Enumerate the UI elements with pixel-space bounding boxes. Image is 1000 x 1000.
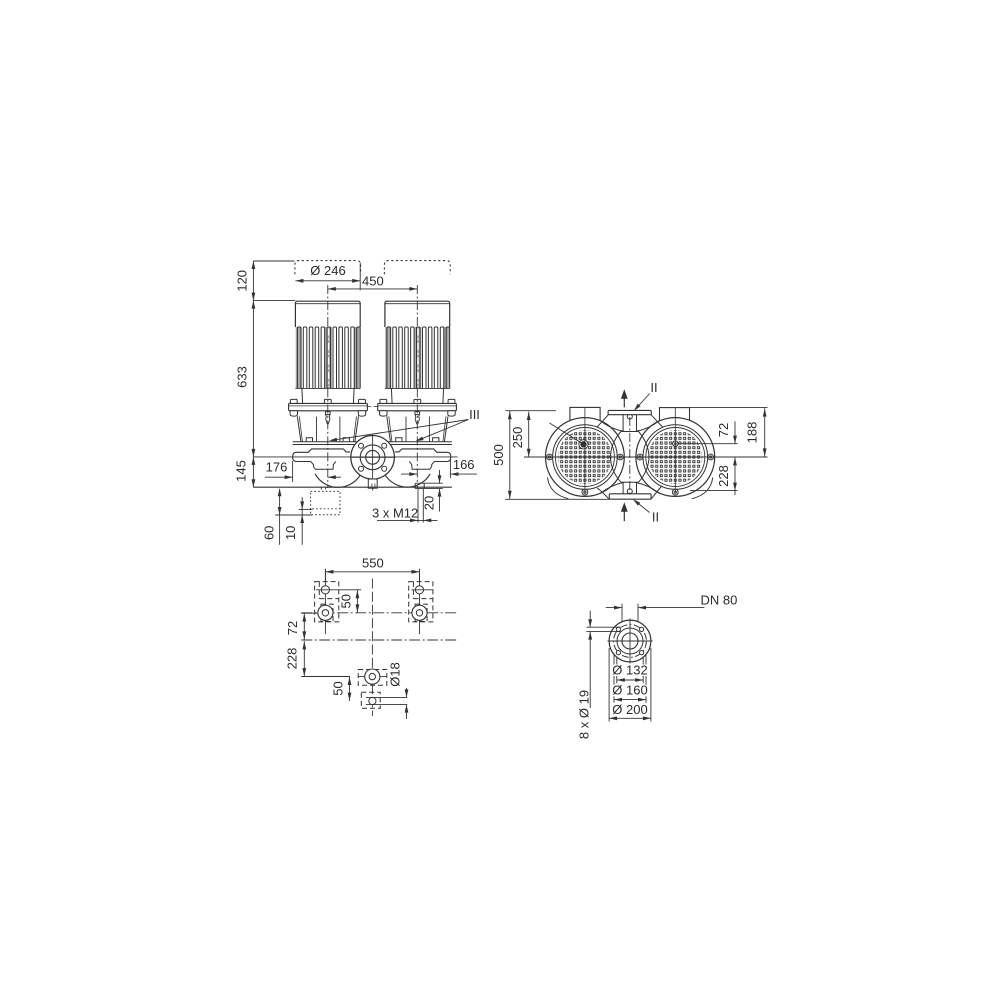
svg-text:DN 80: DN 80	[701, 593, 738, 608]
svg-text:250: 250	[510, 427, 525, 449]
svg-text:Ø18: Ø18	[388, 662, 403, 687]
svg-text:20: 20	[422, 496, 437, 510]
svg-text:450: 450	[362, 274, 384, 289]
svg-text:72: 72	[716, 423, 731, 437]
svg-text:Ø 132: Ø 132	[612, 662, 647, 677]
svg-text:188: 188	[745, 422, 760, 444]
svg-text:176: 176	[266, 460, 288, 475]
svg-text:III: III	[469, 407, 480, 422]
svg-text:228: 228	[285, 648, 300, 670]
svg-text:Ø 200: Ø 200	[612, 702, 647, 717]
svg-text:8 x Ø 19: 8 x Ø 19	[576, 690, 591, 739]
svg-text:550: 550	[362, 555, 384, 570]
svg-text:633: 633	[235, 366, 250, 388]
svg-text:50: 50	[339, 594, 354, 608]
svg-text:145: 145	[234, 460, 249, 482]
svg-text:50: 50	[330, 681, 345, 695]
svg-text:II: II	[652, 510, 659, 525]
svg-text:II: II	[650, 380, 657, 395]
svg-text:Ø 246: Ø 246	[310, 263, 345, 278]
svg-text:60: 60	[261, 526, 276, 540]
svg-text:Ø 160: Ø 160	[612, 683, 647, 698]
svg-text:120: 120	[235, 270, 250, 292]
svg-text:228: 228	[716, 465, 731, 487]
svg-text:3 x M12: 3 x M12	[372, 506, 418, 521]
svg-text:10: 10	[283, 526, 298, 540]
svg-text:166: 166	[453, 457, 475, 472]
svg-text:72: 72	[285, 621, 300, 635]
svg-text:500: 500	[491, 444, 506, 466]
